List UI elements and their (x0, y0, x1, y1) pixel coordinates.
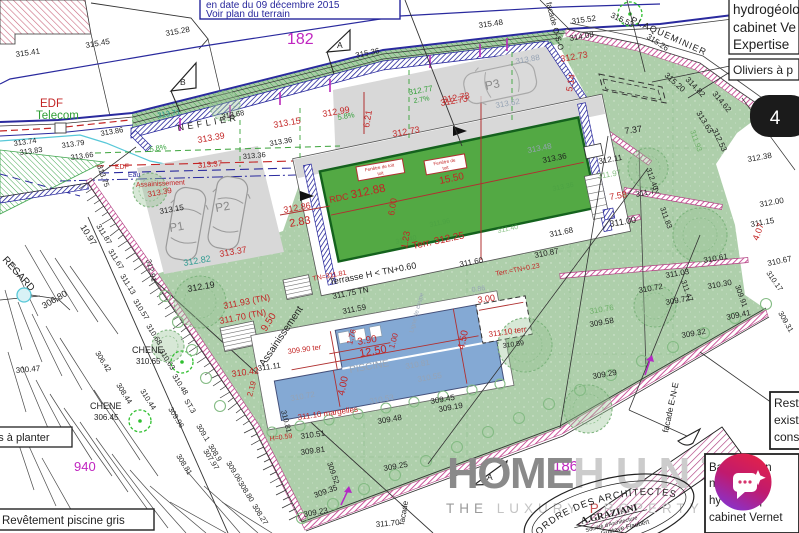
svg-text:exist: exist (774, 413, 799, 427)
svg-text:cons: cons (774, 430, 799, 444)
svg-text:Eau: Eau (128, 172, 141, 179)
svg-text:Rest: Rest (774, 396, 799, 410)
svg-text:Expertise: Expertise (733, 37, 789, 52)
svg-text:310.65: 310.65 (136, 357, 161, 366)
svg-text:P1: P1 (168, 219, 185, 235)
svg-text:Telecom: Telecom (36, 110, 79, 122)
svg-text:B: B (180, 77, 186, 87)
svg-text:Revêtement piscine gris: Revêtement piscine gris (2, 515, 125, 527)
svg-text:EDF: EDF (115, 164, 129, 171)
svg-text:306.45: 306.45 (94, 413, 119, 422)
svg-text:cabinet Vernet: cabinet Vernet (709, 512, 783, 524)
svg-text:cabinet Ve: cabinet Ve (733, 20, 796, 35)
svg-text:A: A (337, 40, 343, 50)
svg-text:Voir plan du terrain: Voir plan du terrain (206, 9, 290, 20)
svg-text:CHENE: CHENE (90, 401, 122, 411)
svg-text:CHENE: CHENE (132, 345, 164, 355)
svg-text:hydrogéolo: hydrogéolo (733, 2, 799, 17)
svg-text:Oliviers à p: Oliviers à p (733, 63, 793, 77)
svg-text:iers à planter: iers à planter (0, 432, 50, 444)
svg-text:940: 940 (74, 459, 96, 474)
svg-text:4: 4 (770, 108, 781, 129)
svg-text:P2: P2 (214, 199, 231, 215)
svg-text:182: 182 (287, 31, 314, 48)
svg-text:EDF: EDF (40, 98, 63, 110)
svg-text:HOME: HOME (447, 449, 573, 498)
